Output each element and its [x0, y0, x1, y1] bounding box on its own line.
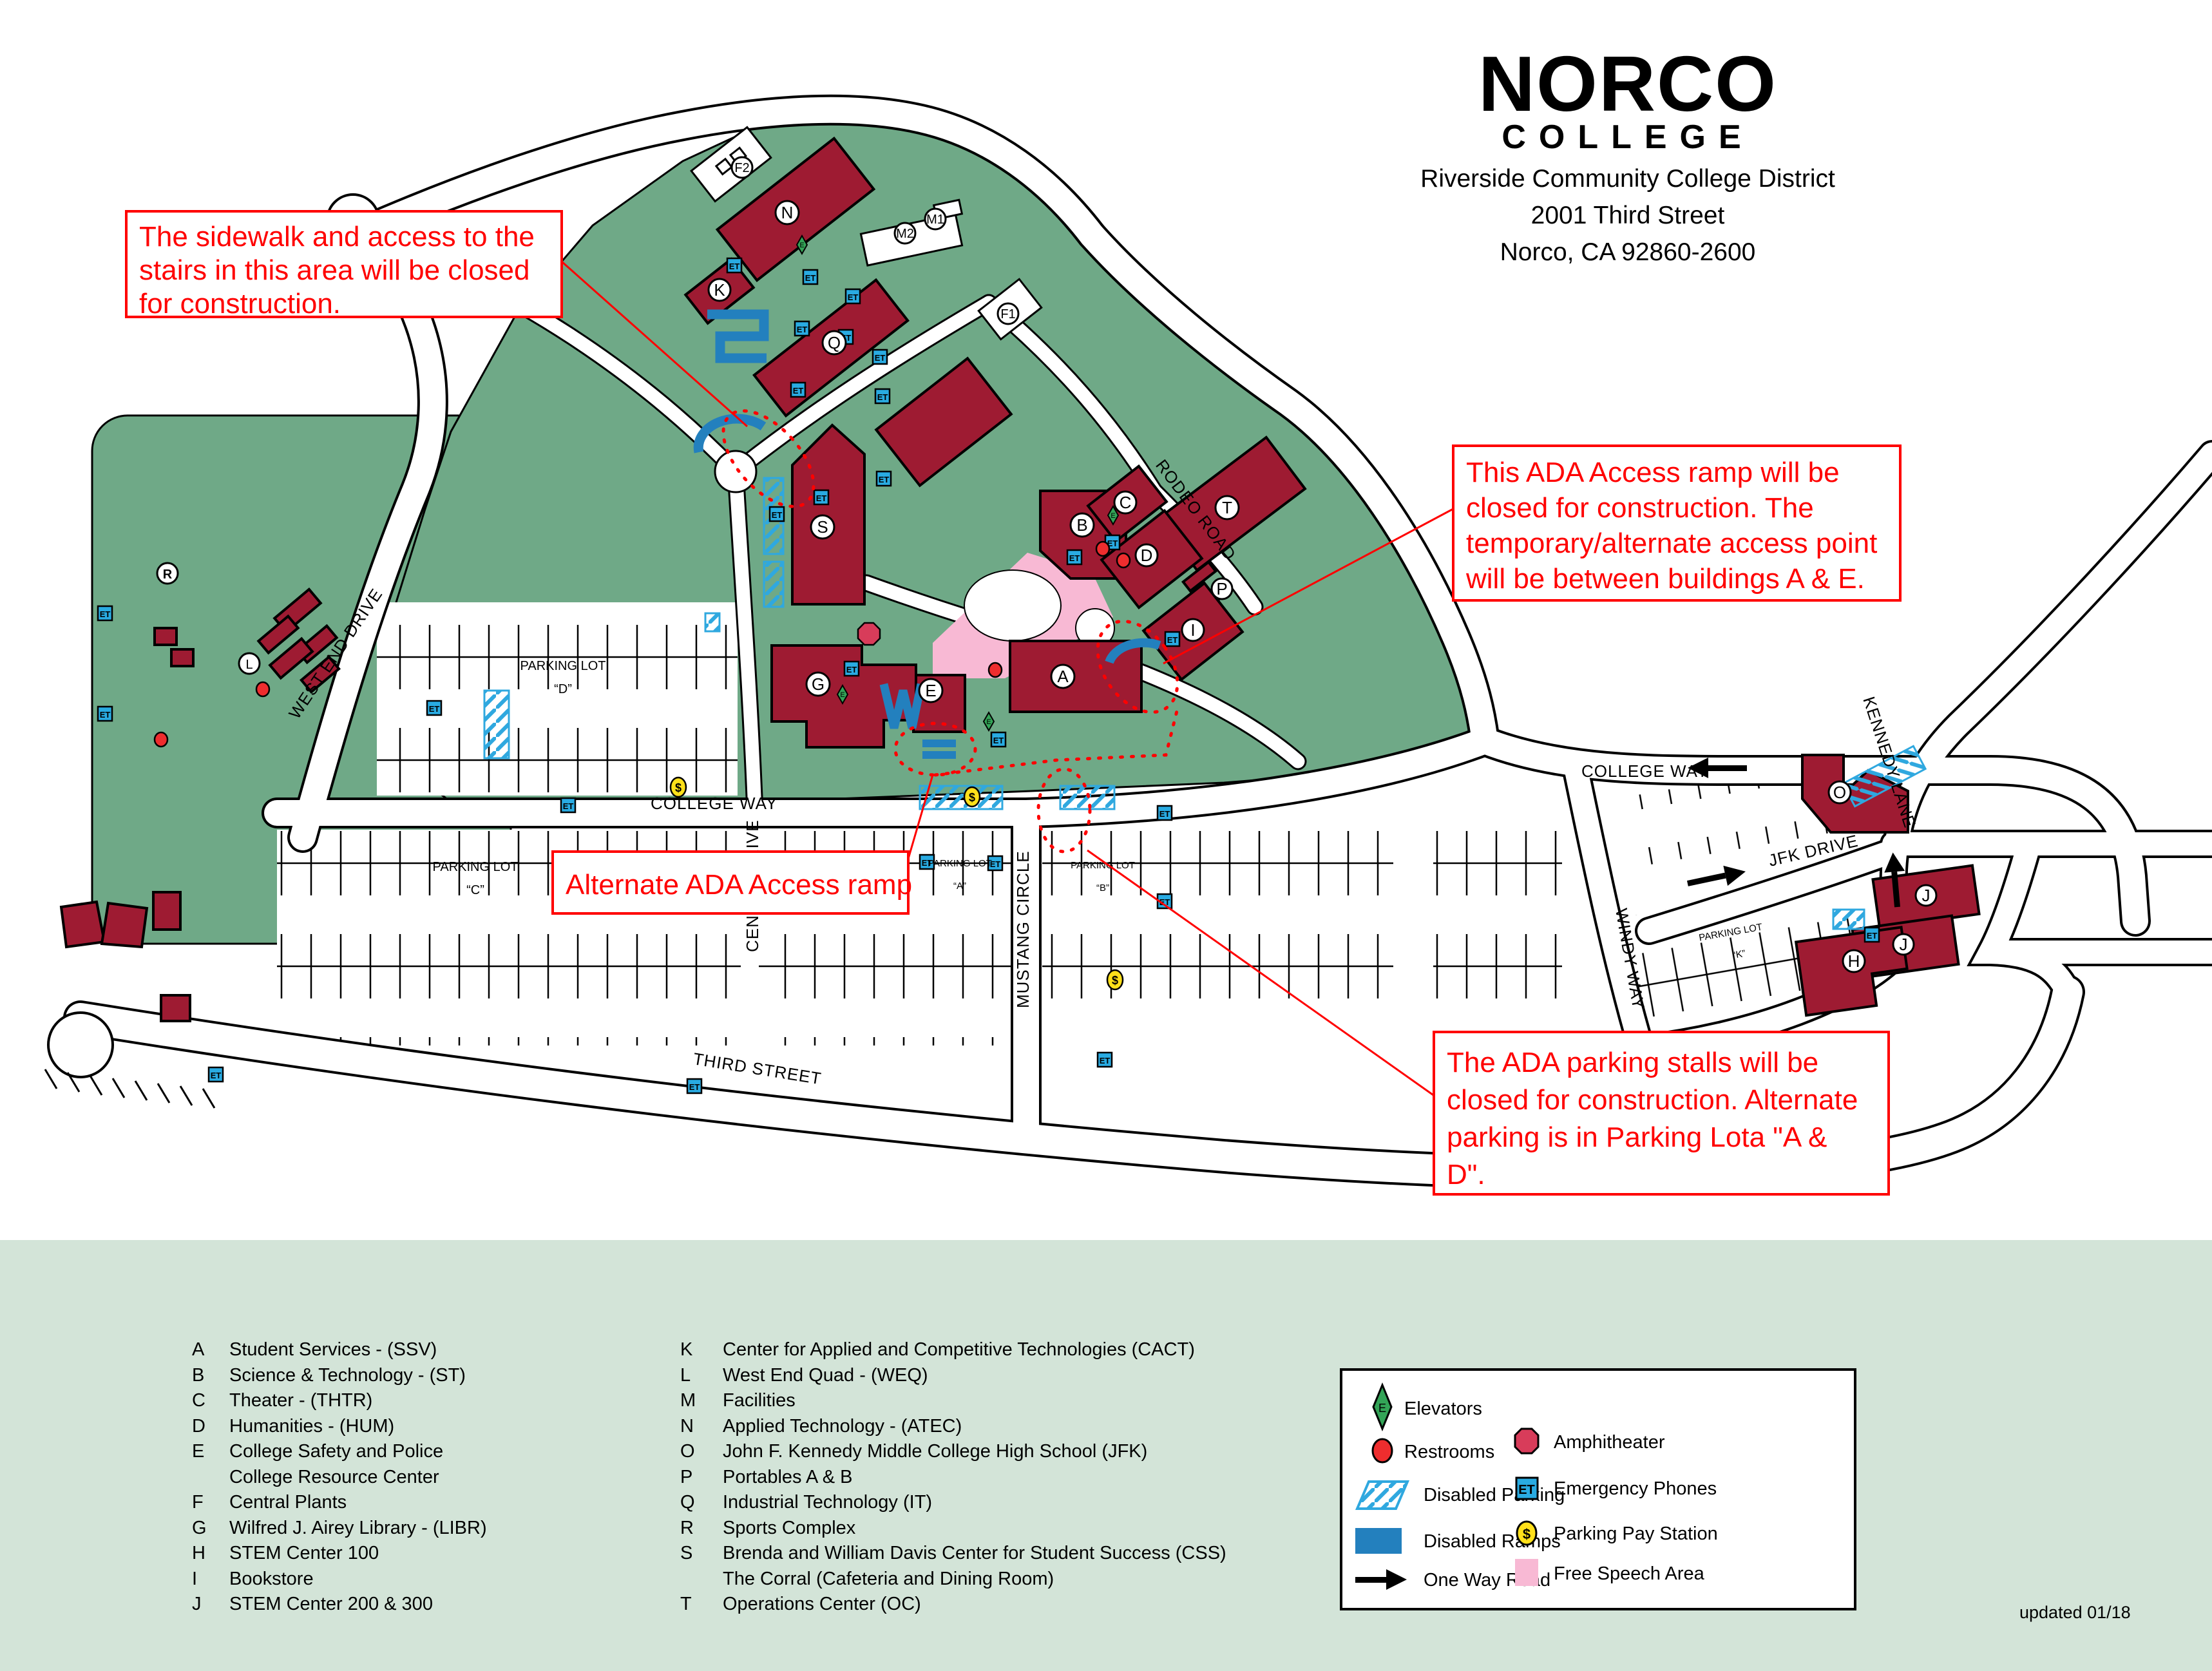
annotation-text: The sidewalk and access to the — [139, 221, 535, 253]
emergency-phone-icon — [844, 662, 859, 676]
lot-b-name: “B” — [1096, 883, 1109, 893]
logo-address-3: Norco, CA 92860-2600 — [1500, 238, 1756, 266]
lot-d-title: PARKING LOT — [520, 659, 606, 673]
list-name: STEM Center 100 — [229, 1543, 379, 1563]
list-name: STEM Center 200 & 300 — [229, 1594, 433, 1614]
svg-text:D: D — [1141, 546, 1153, 565]
plaza — [964, 570, 1061, 641]
emergency-phone-icon — [209, 1067, 223, 1082]
list-letter: P — [680, 1467, 692, 1487]
list-name: John F. Kennedy Middle College High Scho… — [723, 1441, 1147, 1462]
svg-text:T: T — [1222, 498, 1232, 517]
list-name: Wilfred J. Airey Library - (LIBR) — [229, 1518, 487, 1538]
emergency-phone-icon — [687, 1079, 701, 1093]
annotation-box-ramp-closed: This ADA Access ramp will be closed for … — [1453, 446, 1900, 600]
pay-station-icon — [964, 787, 980, 807]
list-name: Operations Center (OC) — [723, 1594, 921, 1614]
list-letter: T — [680, 1594, 692, 1614]
marker-f1: F1 — [998, 303, 1018, 324]
svg-text:F1: F1 — [1000, 307, 1015, 321]
emergency-phone-label: ET — [1518, 1483, 1535, 1497]
traffic-circle — [715, 451, 756, 492]
emergency-phone-icon — [991, 732, 1006, 747]
legend-label: Amphitheater — [1554, 1432, 1665, 1453]
marker-m2: M2 — [895, 223, 915, 243]
amphitheater-icon — [858, 623, 880, 645]
marker-i: I — [1182, 619, 1204, 641]
emergency-phone-icon — [98, 707, 112, 721]
restroom-icon — [1117, 553, 1130, 568]
legend-label: Parking Pay Station — [1554, 1523, 1718, 1544]
svg-text:I: I — [1190, 620, 1195, 640]
emergency-phone-icon — [791, 383, 805, 397]
svg-text:M2: M2 — [896, 227, 914, 241]
emergency-phone-icon — [727, 258, 741, 272]
marker-f2: F2 — [732, 157, 752, 178]
svg-text:O: O — [1833, 783, 1846, 802]
list-name: Sports Complex — [723, 1518, 856, 1538]
marker-c: C — [1114, 492, 1136, 513]
list-letter: A — [192, 1339, 205, 1360]
emergency-phone-icon — [873, 350, 887, 364]
emergency-phone-icon — [803, 270, 817, 284]
annotation-text: The ADA parking stalls will be — [1447, 1047, 1818, 1078]
svg-text:Q: Q — [828, 333, 841, 352]
annotation-text: stairs in this area will be closed — [139, 254, 529, 286]
list-letter: F — [192, 1492, 204, 1513]
emergency-phone-icon — [561, 798, 575, 812]
emergency-phone-icon — [770, 507, 784, 521]
marker-q: Q — [823, 331, 846, 354]
marker-j-lower: J — [1893, 934, 1914, 955]
logo-college: COLLEGE — [1502, 119, 1753, 156]
annotation-box-alternate-ramp: Alternate ADA Access ramp — [553, 852, 912, 913]
lot-d-name: “D” — [554, 682, 572, 696]
list-name: College Resource Center — [229, 1467, 439, 1487]
restroom-icon — [155, 732, 167, 747]
list-letter: N — [680, 1416, 694, 1437]
list-letter: I — [192, 1569, 197, 1589]
svg-text:E: E — [925, 681, 936, 700]
list-letter: O — [680, 1441, 695, 1462]
marker-b: B — [1071, 513, 1094, 537]
legend-label: Restrooms — [1404, 1442, 1494, 1462]
legend-label: Emergency Phones — [1554, 1478, 1717, 1499]
list-name: Bookstore — [229, 1569, 314, 1589]
list-name: Science & Technology - (ST) — [229, 1365, 466, 1386]
marker-d: D — [1136, 544, 1158, 566]
marker-r: R — [157, 563, 178, 584]
restroom-icon — [989, 663, 1002, 677]
legend-label: Disabled Parking — [1424, 1485, 1565, 1505]
marker-l: L — [239, 653, 260, 674]
svg-text:A: A — [1057, 667, 1069, 686]
logo-address-1: Riverside Community College District — [1420, 165, 1835, 193]
svg-text:C: C — [1120, 493, 1132, 512]
list-name: Applied Technology - (ATEC) — [723, 1416, 962, 1437]
list-letter: S — [680, 1543, 692, 1563]
emergency-phone-icon — [795, 321, 809, 336]
campus-map: ET E $ — [0, 0, 2212, 1671]
list-letter: C — [192, 1390, 205, 1411]
list-letter: E — [192, 1441, 204, 1462]
marker-m1: M1 — [925, 209, 946, 229]
marker-k: K — [709, 279, 730, 301]
annotation-text: closed for construction. Alternate — [1447, 1084, 1858, 1116]
lot-k-name: “K” — [1732, 948, 1747, 961]
emergency-phone-icon — [1098, 1053, 1112, 1067]
list-name: Industrial Technology (IT) — [723, 1492, 932, 1513]
logo-address-2: 2001 Third Street — [1531, 202, 1725, 229]
cul-de-sac — [48, 1013, 113, 1077]
svg-text:N: N — [781, 203, 794, 222]
list-letter: L — [680, 1365, 691, 1386]
restroom-icon — [256, 682, 269, 696]
annotation-text: Alternate ADA Access ramp — [566, 869, 912, 901]
elevator-label: E — [1378, 1402, 1386, 1415]
svg-text:B: B — [1076, 515, 1087, 535]
legend-box: E Elevators Restrooms Disabled Parking D… — [1341, 1370, 1855, 1609]
svg-text:G: G — [812, 674, 825, 694]
list-name: Facilities — [723, 1390, 796, 1411]
annotation-text: parking is in Parking Lota "A & — [1447, 1122, 1827, 1153]
emergency-phone-icon — [1865, 928, 1879, 942]
annotation-text: This ADA Access ramp will be — [1466, 457, 1840, 488]
emergency-phone-icon — [875, 389, 890, 403]
list-name: West End Quad - (WEQ) — [723, 1365, 928, 1386]
list-name: Humanities - (HUM) — [229, 1416, 394, 1437]
list-name: College Safety and Police — [229, 1441, 443, 1462]
emergency-phone-icon — [877, 472, 891, 486]
list-name: Student Services - (SSV) — [229, 1339, 437, 1360]
list-name: Brenda and William Davis Center for Stud… — [723, 1543, 1226, 1563]
pay-station-label: $ — [1523, 1526, 1530, 1542]
svg-text:J: J — [1922, 886, 1931, 905]
list-letter: Q — [680, 1492, 695, 1513]
list-letter: G — [192, 1518, 207, 1538]
emergency-phone-icon — [1158, 806, 1172, 820]
marker-a: A — [1051, 665, 1074, 688]
svg-text:M1: M1 — [926, 213, 944, 227]
emergency-phone-icon — [98, 606, 112, 620]
svg-text:P: P — [1216, 579, 1227, 598]
marker-t: T — [1216, 496, 1239, 519]
emergency-phone-icon — [1067, 550, 1082, 564]
annotation-text: will be between buildings A & E. — [1465, 563, 1865, 595]
street-mustang-circle: MUSTANG CIRCLE — [1013, 850, 1033, 1008]
updated-date: updated 01/18 — [2019, 1603, 2131, 1622]
list-letter: K — [680, 1339, 693, 1360]
emergency-phone-icon — [427, 701, 441, 715]
svg-text:F2: F2 — [734, 161, 749, 175]
legend-label: Disabled Ramps — [1424, 1531, 1561, 1552]
annotation-box-ada-parking: The ADA parking stalls will be closed fo… — [1434, 1032, 1889, 1194]
svg-text:K: K — [714, 280, 725, 300]
list-name: Theater - (THTR) — [229, 1390, 372, 1411]
lot-c-name: “C” — [466, 883, 484, 897]
emergency-phone-icon — [1165, 632, 1179, 646]
list-letter: B — [192, 1365, 204, 1386]
marker-g: G — [806, 673, 830, 696]
restroom-icon — [1096, 542, 1109, 556]
list-letter: M — [680, 1390, 696, 1411]
svg-text:R: R — [163, 568, 173, 582]
logo-norco: NORCO — [1478, 40, 1777, 128]
annotation-text: temporary/alternate access point — [1466, 528, 1877, 559]
annotation-text: D". — [1447, 1159, 1485, 1190]
list-letter: R — [680, 1518, 694, 1538]
lot-a-title: PARKING LOT — [928, 858, 992, 869]
list-name: The Corral (Cafeteria and Dining Room) — [723, 1569, 1054, 1589]
emergency-phone-icon — [846, 289, 860, 303]
street-college-way-right: COLLEGE WAY — [1581, 761, 1708, 781]
svg-text:H: H — [1848, 951, 1860, 971]
list-name: Central Plants — [229, 1492, 347, 1513]
legend-label: Free Speech Area — [1554, 1563, 1705, 1584]
list-letter: H — [192, 1543, 205, 1563]
svg-text:S: S — [817, 517, 828, 537]
marker-h: H — [1843, 950, 1865, 972]
marker-s: S — [811, 515, 834, 539]
pay-station-icon — [1107, 970, 1123, 989]
legend-label: Elevators — [1404, 1399, 1482, 1419]
lot-a-name: “A” — [953, 881, 966, 892]
list-name: Portables A & B — [723, 1467, 853, 1487]
marker-p: P — [1212, 578, 1232, 599]
marker-o: O — [1829, 781, 1851, 803]
emergency-phone-icon — [814, 490, 828, 504]
annotation-box-sidewalk: The sidewalk and access to the stairs in… — [126, 211, 562, 320]
lot-c-title: PARKING LOT — [433, 860, 519, 874]
street-college-way-left: COLLEGE WAY — [651, 794, 777, 813]
marker-j-upper: J — [1916, 885, 1936, 906]
list-name: Center for Applied and Competitive Techn… — [723, 1339, 1195, 1360]
svg-text:J: J — [1900, 935, 1908, 954]
svg-text:L: L — [245, 658, 253, 672]
marker-n: N — [776, 201, 799, 224]
annotation-text: closed for construction. The — [1466, 492, 1814, 524]
list-letter: J — [192, 1594, 202, 1614]
marker-e: E — [919, 679, 942, 702]
list-letter: D — [192, 1416, 205, 1437]
annotation-text: for construction. — [139, 288, 341, 320]
